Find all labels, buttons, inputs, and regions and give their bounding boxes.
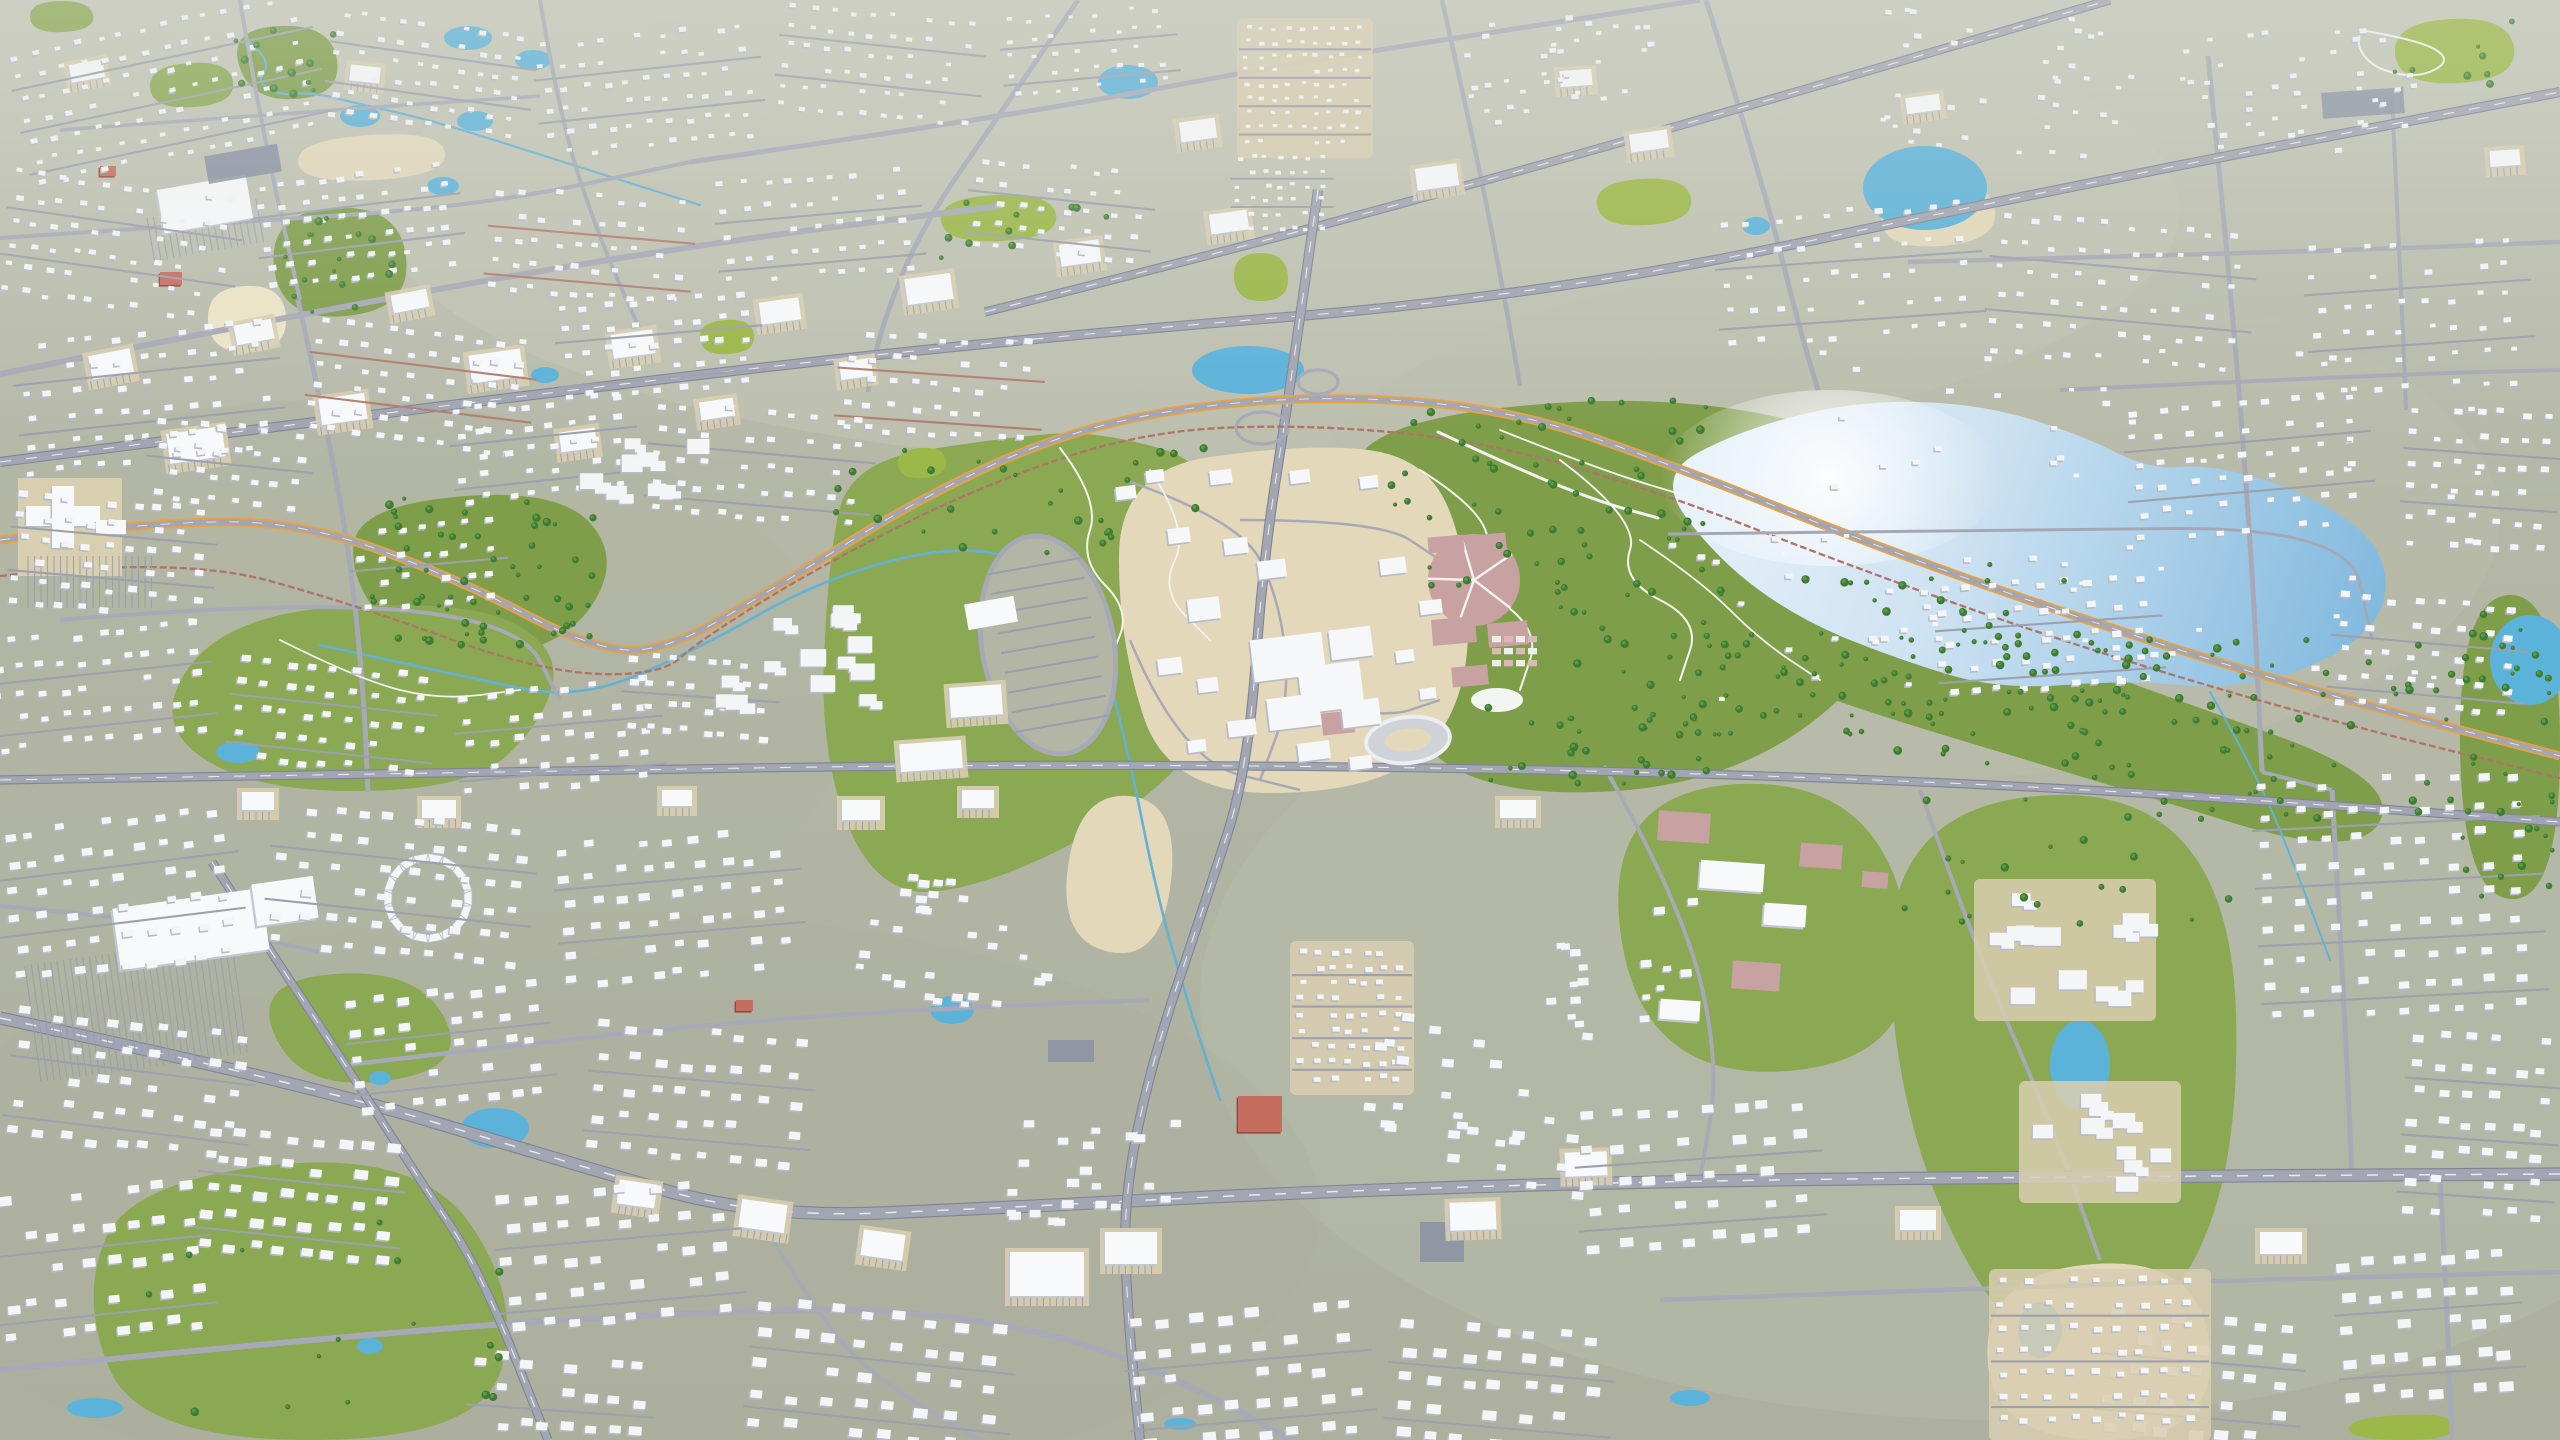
garden-plot bbox=[1516, 636, 1525, 642]
school-sports-field bbox=[1731, 960, 1781, 991]
layer-haze bbox=[0, 0, 2560, 430]
big-box-store bbox=[1450, 1201, 1497, 1231]
big-box-store bbox=[962, 790, 994, 808]
school-building bbox=[1763, 903, 1806, 928]
red-building bbox=[736, 1000, 753, 1011]
garden-plot bbox=[1528, 636, 1537, 642]
pond bbox=[369, 1071, 391, 1085]
residential-block bbox=[1989, 1269, 2211, 1440]
big-box-store bbox=[1500, 800, 1536, 818]
pond bbox=[1670, 1390, 1710, 1406]
garden-plot bbox=[1504, 648, 1513, 654]
big-box-store bbox=[899, 740, 963, 772]
school-sports-field bbox=[1799, 843, 1843, 870]
big-box-store bbox=[1010, 1252, 1084, 1296]
garden-plot bbox=[1516, 648, 1525, 654]
big-box-store bbox=[949, 684, 1003, 718]
garden-plot bbox=[1492, 660, 1501, 666]
garden-plot bbox=[1504, 660, 1513, 666]
big-box-store bbox=[1105, 1232, 1157, 1264]
apartment-cluster bbox=[1974, 879, 2158, 1021]
big-box-store bbox=[662, 790, 692, 806]
park-pink-pad bbox=[1427, 535, 1464, 554]
park-pink-pad bbox=[1451, 665, 1489, 688]
red-building bbox=[1238, 1096, 1282, 1132]
big-box-store bbox=[422, 800, 456, 818]
city-3d-map-svg bbox=[0, 0, 2560, 1440]
big-box-store bbox=[842, 800, 880, 820]
dry-white-pond bbox=[1471, 688, 1523, 712]
garden-plot bbox=[1528, 648, 1537, 654]
school-building bbox=[1699, 860, 1765, 892]
garden-plot bbox=[1492, 636, 1501, 642]
cluster-pad bbox=[1989, 1269, 2211, 1440]
residential-block bbox=[1290, 941, 1414, 1095]
school-building bbox=[1659, 999, 1700, 1022]
city-3d-map[interactable] bbox=[0, 0, 2560, 1440]
park-pink-pad bbox=[1487, 620, 1529, 647]
park-pink-pad bbox=[1471, 533, 1506, 552]
big-box-store bbox=[242, 792, 274, 810]
park-pink-pad bbox=[1431, 616, 1477, 646]
pond bbox=[67, 1398, 123, 1418]
big-box-store bbox=[1565, 1151, 1608, 1176]
garden-plot bbox=[1492, 648, 1501, 654]
garden-plot bbox=[1528, 660, 1537, 666]
dark-parking-lot bbox=[1048, 1040, 1094, 1062]
garden-plot bbox=[1504, 636, 1513, 642]
apartment-cluster bbox=[2019, 1081, 2181, 1203]
garden-plot bbox=[1516, 660, 1525, 666]
big-box-store bbox=[1900, 1210, 1936, 1230]
pond bbox=[357, 1338, 383, 1354]
big-box-store bbox=[2260, 1232, 2302, 1254]
school-sports-field bbox=[1862, 871, 1889, 889]
school-sports-field bbox=[1657, 810, 1711, 844]
park-lawn bbox=[94, 1163, 507, 1440]
distance-haze bbox=[0, 0, 2560, 430]
